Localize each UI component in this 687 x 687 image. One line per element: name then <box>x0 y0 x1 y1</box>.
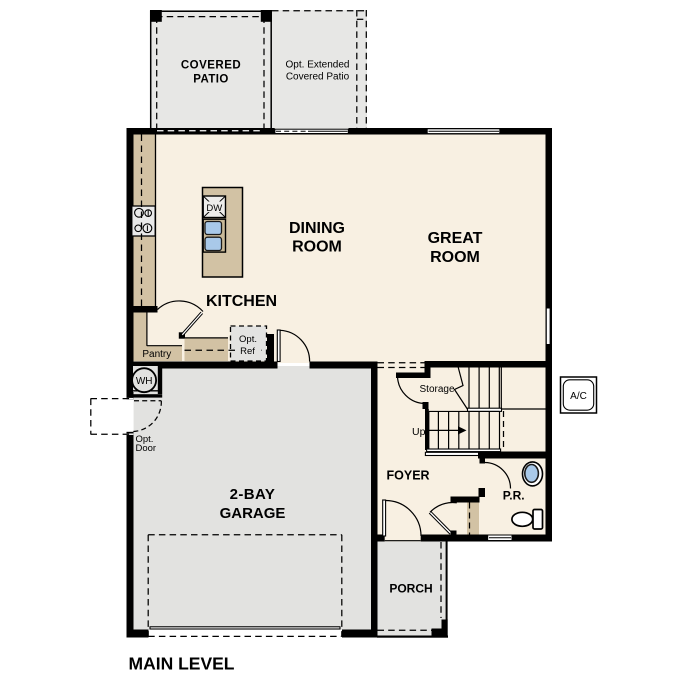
svg-text:MAIN LEVEL: MAIN LEVEL <box>129 653 235 673</box>
svg-text:P.R.: P.R. <box>503 489 525 503</box>
svg-text:PORCH: PORCH <box>389 581 432 595</box>
svg-text:KITCHEN: KITCHEN <box>206 293 277 310</box>
svg-text:DINING: DINING <box>289 220 345 237</box>
svg-text:ROOM: ROOM <box>292 239 342 256</box>
svg-text:FOYER: FOYER <box>387 469 430 483</box>
svg-text:Opt.: Opt. <box>239 334 257 345</box>
svg-text:PATIO: PATIO <box>193 73 228 85</box>
svg-text:A/C: A/C <box>570 391 587 402</box>
svg-text:Up: Up <box>412 426 426 438</box>
svg-text:2-BAY: 2-BAY <box>230 486 276 503</box>
svg-text:GARAGE: GARAGE <box>220 505 286 522</box>
svg-text:Opt. Extended: Opt. Extended <box>286 59 350 70</box>
svg-text:GREAT: GREAT <box>428 230 483 247</box>
svg-text:Door: Door <box>136 443 157 454</box>
svg-text:Storage: Storage <box>420 384 455 395</box>
svg-text:ROOM: ROOM <box>430 249 480 266</box>
svg-text:DW: DW <box>206 203 222 214</box>
svg-text:COVERED: COVERED <box>181 60 241 72</box>
svg-text:Pantry: Pantry <box>142 349 171 360</box>
svg-text:Ref: Ref <box>240 346 255 357</box>
svg-text:Covered Patio: Covered Patio <box>286 72 350 83</box>
svg-text:WH: WH <box>136 376 153 387</box>
